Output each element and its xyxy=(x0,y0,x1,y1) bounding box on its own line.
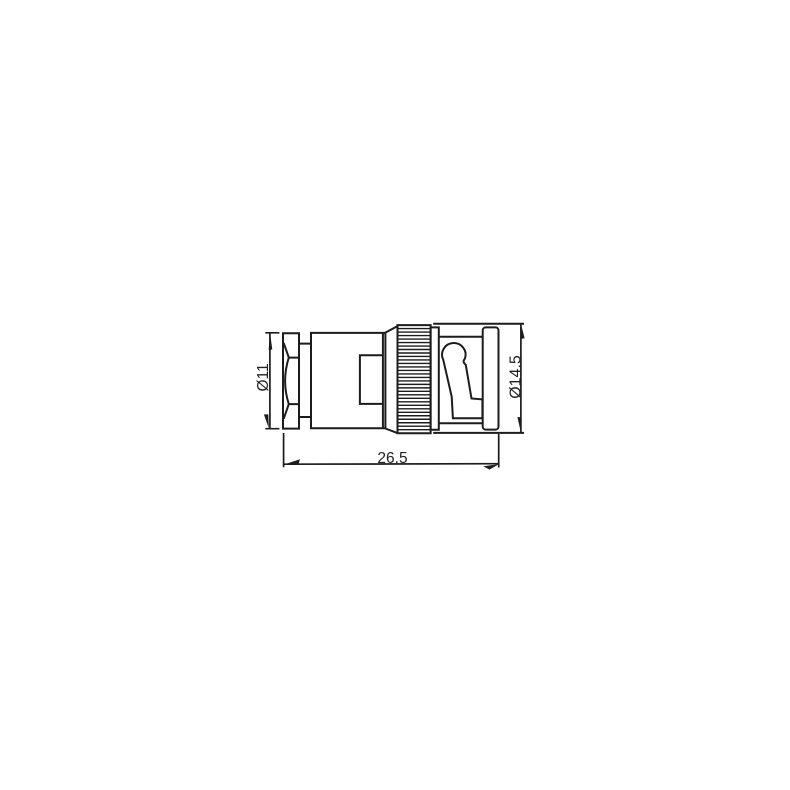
svg-text:Ø14.5: Ø14.5 xyxy=(507,355,524,399)
svg-text:Ø11: Ø11 xyxy=(255,363,272,391)
svg-text:26.5: 26.5 xyxy=(377,450,407,467)
